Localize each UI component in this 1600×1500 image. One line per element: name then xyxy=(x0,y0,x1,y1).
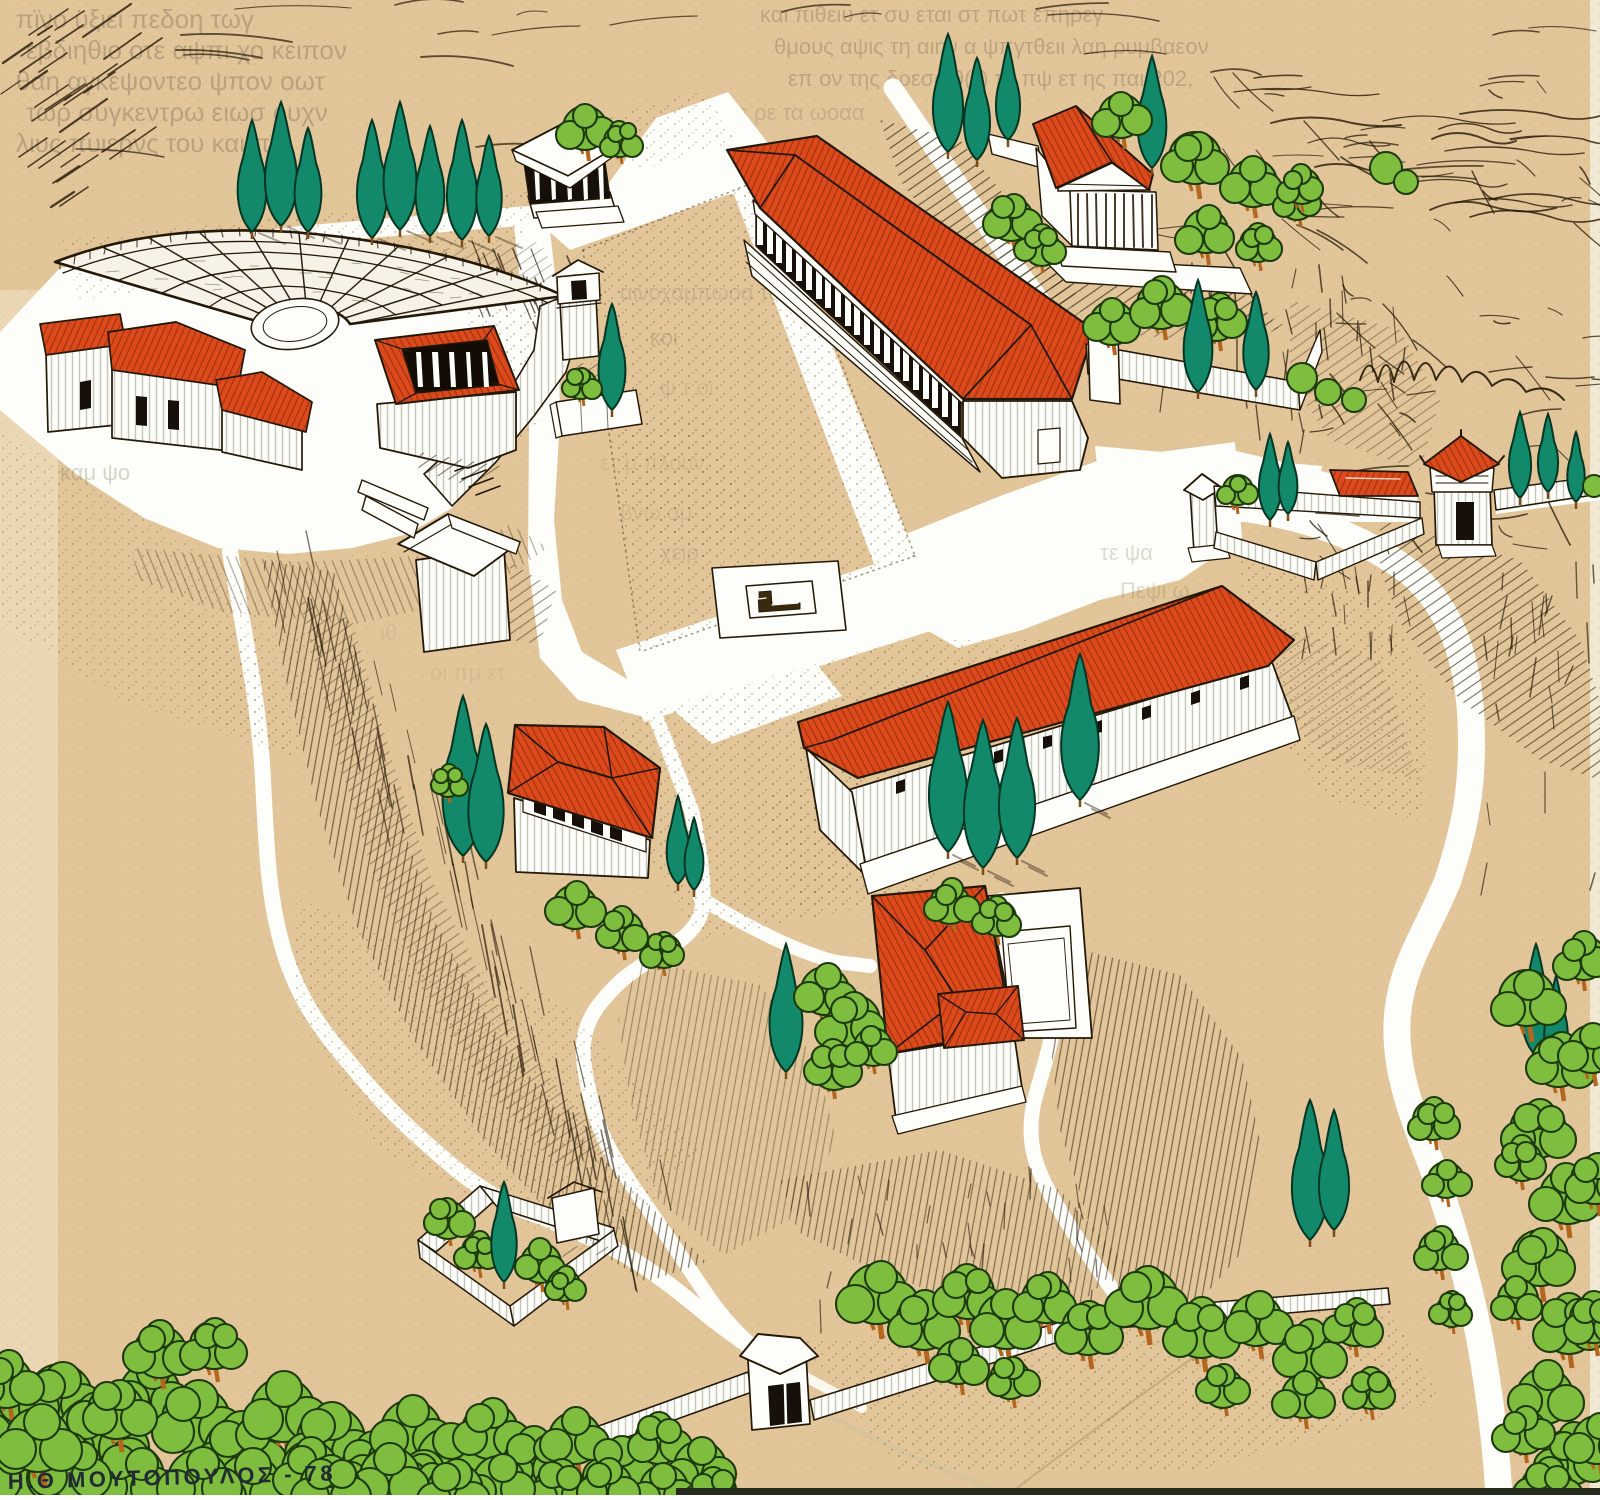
svg-text:βνω αμ: βνω αμ xyxy=(620,500,692,525)
svg-text:ψ τ οι: ψ τ οι xyxy=(660,375,714,400)
svg-text:χειρ: χειρ xyxy=(660,540,699,565)
svg-text:ετ μ πλουν: ετ μ πλουν xyxy=(600,450,705,475)
svg-text:επ ον της δρεσαιθ(ζ) το πψ ετ: επ ον της δρεσαιθ(ζ) το πψ ετ ης παι 202… xyxy=(788,66,1193,91)
svg-text:οι πμ ετ: οι πμ ετ xyxy=(430,660,506,685)
svg-text:ιθ: ιθ xyxy=(380,620,397,645)
svg-text:θαη αγκεψοντεο ψπον οωτ: θαη αγκεψοντεο ψπον οωτ xyxy=(16,66,326,96)
svg-text:θμους αψις τη αιην α ψπγτθειι: θμους αψις τη αιην α ψπγτθειι λαη ρυμβαε… xyxy=(774,34,1209,59)
svg-text:τε ψα: τε ψα xyxy=(1100,540,1153,565)
svg-text:καμ ψο: καμ ψο xyxy=(60,460,130,485)
svg-text:αινοχαμπωοα το: αινοχαμπωοα το xyxy=(620,280,780,305)
svg-text:κοι: κοι xyxy=(650,325,678,350)
